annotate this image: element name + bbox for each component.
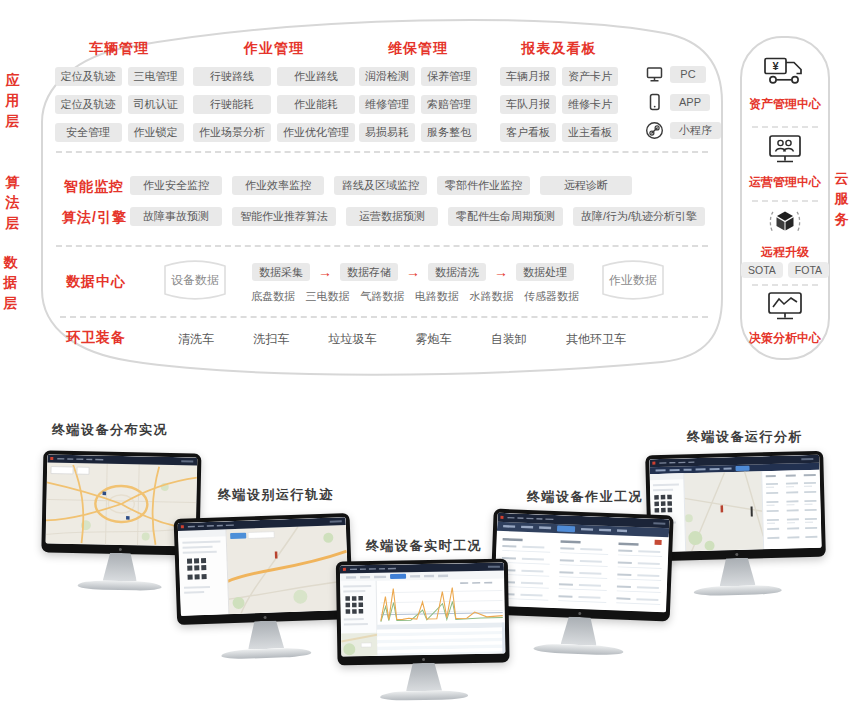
link-icon xyxy=(645,121,664,140)
algo-pill: 故障事故预测 xyxy=(130,207,222,226)
equipment-label: 雾炮车 xyxy=(416,331,452,348)
cloud-services-label: 云服务 xyxy=(833,168,850,229)
data-sources: 底盘数据 三电数据 气路数据 电路数据 水路数据 传感器数据 xyxy=(251,289,579,304)
cloud-section-label: 运营管理中心 xyxy=(742,174,828,191)
flow-arrow-icon: → xyxy=(494,263,508,281)
cloud-divider xyxy=(752,200,818,202)
algo-row-title: 算法/引擎 xyxy=(62,209,127,227)
equipment-label: 自装卸 xyxy=(491,331,527,348)
app-pill: 易损易耗 xyxy=(359,123,415,142)
app-pill: 车队月报 xyxy=(500,95,556,114)
app-pill: 资产卡片 xyxy=(562,67,618,86)
group-maintenance-mgmt: 维保管理 润滑检测 保养管理 维修管理 索赔管理 易损易耗 服务整包 xyxy=(356,40,480,142)
algo-row-title: 智能监控 xyxy=(64,178,124,196)
group-vehicle-mgmt: 车辆管理 定位及轨迹 三电管理 定位及轨迹 司机认证 安全管理 作业锁定 xyxy=(52,40,186,142)
group-title: 作业管理 xyxy=(198,40,350,58)
app-pill: 三电管理 xyxy=(128,67,184,86)
group-title: 报表及看板 xyxy=(496,40,622,58)
data-source-label: 三电数据 xyxy=(306,289,350,304)
algo-pill: 智能作业推荐算法 xyxy=(232,207,336,226)
monitor-label: 终端设备作业工况 xyxy=(527,488,643,506)
smartphone-icon xyxy=(645,93,664,111)
algo-pill: 作业效率监控 xyxy=(232,176,324,195)
algo-engine-row: 故障事故预测 智能作业推荐算法 运营数据预测 零配件生命周期预测 故障/行为/轨… xyxy=(130,207,705,226)
platform-pill: 小程序 xyxy=(670,122,721,139)
layer-label-data: 数据层 xyxy=(2,252,19,313)
monitor-label: 终端设别运行轨迹 xyxy=(218,486,334,504)
app-pill: 保养管理 xyxy=(421,67,477,86)
equipment-title: 环卫装备 xyxy=(66,329,126,347)
data-center-title: 数据中心 xyxy=(66,273,126,291)
data-source-label: 传感器数据 xyxy=(524,289,579,304)
group-operation-mgmt: 作业管理 行驶路线 作业路线 行驶能耗 作业能耗 作业场景分析 作业优化管理 xyxy=(198,40,350,142)
cloud-divider xyxy=(752,126,818,128)
algo-pill: 运营数据预测 xyxy=(346,207,438,226)
app-pill: 定位及轨迹 xyxy=(55,95,122,114)
data-source-label: 气路数据 xyxy=(360,289,404,304)
flow-arrow-icon: → xyxy=(406,263,420,281)
equipment-label: 其他环卫车 xyxy=(566,331,626,348)
monitor-label: 终端设备分布实况 xyxy=(52,421,168,439)
group-title: 车辆管理 xyxy=(52,40,186,58)
divider-data-equipment xyxy=(60,316,708,318)
equipment-list: 清洗车 洗扫车 垃垃圾车 雾炮车 自装卸 其他环卫车 xyxy=(178,331,626,348)
architecture-poster: 应用层 算法层 数据层 车辆管理 定位及轨迹 三电管理 定位及轨迹 司机认证 安… xyxy=(0,0,851,715)
flow-pill: 数据采集 xyxy=(252,263,310,281)
svg-text:¥: ¥ xyxy=(772,60,779,72)
algo-pill: 作业安全监控 xyxy=(130,176,222,195)
app-pill: 作业优化管理 xyxy=(277,123,355,142)
monitor-users-icon xyxy=(763,134,807,170)
monitor-label: 终端设备实时工况 xyxy=(366,537,482,555)
platform-pill: PC xyxy=(670,66,706,83)
flow-pill: 数据存储 xyxy=(340,263,398,281)
truck-yen-icon: ¥ xyxy=(763,54,807,88)
app-pill: 索赔管理 xyxy=(421,95,477,114)
app-pill: 作业能耗 xyxy=(277,95,355,114)
data-source-label: 电路数据 xyxy=(415,289,459,304)
app-pill: 车辆月报 xyxy=(500,67,556,86)
group-title: 维保管理 xyxy=(356,40,480,58)
pc-icon xyxy=(645,66,664,83)
cube-icon xyxy=(763,206,807,240)
algo-pill: 路线及区域监控 xyxy=(334,176,427,195)
cloud-services-panel: ¥ 资产管理中心 运营管理中心 远程升级 SOTA FOTA xyxy=(740,36,830,360)
app-pill: 行驶路线 xyxy=(193,67,271,86)
app-pill: 业主看板 xyxy=(562,123,618,142)
layer-label-algorithm: 算法层 xyxy=(4,172,21,233)
monitor-realtime xyxy=(336,559,510,702)
monitor-label: 终端设备运行分析 xyxy=(687,428,803,446)
group-reports-dashboards: 报表及看板 车辆月报 资产卡片 车队月报 维修卡片 客户看板 业主看板 xyxy=(496,40,622,142)
sota-pill: SOTA xyxy=(741,262,783,278)
layer-label-application: 应用层 xyxy=(4,70,21,131)
flow-arrow-icon: → xyxy=(318,263,332,281)
divider-app-algo xyxy=(56,151,708,153)
fota-pill: FOTA xyxy=(788,262,829,278)
algo-pill: 零部件作业监控 xyxy=(437,176,530,195)
app-pill: 作业锁定 xyxy=(128,123,184,142)
app-pill: 服务整包 xyxy=(421,123,477,142)
app-pill: 作业场景分析 xyxy=(193,123,271,142)
algo-pill: 远程诊断 xyxy=(540,176,632,195)
data-source-label: 水路数据 xyxy=(469,289,513,304)
algo-monitoring-row: 作业安全监控 作业效率监控 路线及区域监控 零部件作业监控 远程诊断 xyxy=(130,176,632,195)
monitor-track xyxy=(174,513,355,661)
monitor-workcondition xyxy=(488,509,673,658)
app-pill: 司机认证 xyxy=(128,95,184,114)
app-pill: 维修管理 xyxy=(359,95,415,114)
cloud-divider xyxy=(752,284,818,286)
job-data-store: 作业数据 xyxy=(598,256,668,304)
equipment-label: 清洗车 xyxy=(178,331,214,348)
equipment-label: 洗扫车 xyxy=(253,331,289,348)
cloud-section-label: 远程升级 xyxy=(742,244,828,261)
flow-pill: 数据清洗 xyxy=(428,263,486,281)
divider-algo-data xyxy=(56,245,708,247)
equipment-label: 垃垃圾车 xyxy=(328,331,376,348)
device-data-label: 设备数据 xyxy=(160,256,230,304)
data-flow: 数据采集 → 数据存储 → 数据清洗 → 数据处理 xyxy=(252,263,574,281)
flow-pill: 数据处理 xyxy=(516,263,574,281)
ota-pills: SOTA FOTA xyxy=(742,262,828,278)
app-pill: 行驶能耗 xyxy=(193,95,271,114)
cloud-section-label: 资产管理中心 xyxy=(742,96,828,113)
app-pill: 安全管理 xyxy=(55,123,122,142)
app-pill: 润滑检测 xyxy=(359,67,415,86)
app-pill: 维修卡片 xyxy=(562,95,618,114)
platform-pill: APP xyxy=(670,94,710,111)
app-pill: 客户看板 xyxy=(500,123,556,142)
cloud-section-label: 决策分析中心 xyxy=(742,330,828,347)
platform-endpoints: PC APP 小程序 xyxy=(645,66,721,150)
app-pill: 定位及轨迹 xyxy=(55,67,122,86)
algo-pill: 零配件生命周期预测 xyxy=(448,207,563,226)
job-data-label: 作业数据 xyxy=(598,256,668,304)
data-source-label: 底盘数据 xyxy=(251,289,295,304)
device-data-store: 设备数据 xyxy=(160,256,230,304)
algo-pill: 故障/行为/轨迹分析引擎 xyxy=(573,207,705,226)
monitor-chart-icon xyxy=(763,290,807,326)
app-pill: 作业路线 xyxy=(277,67,355,86)
